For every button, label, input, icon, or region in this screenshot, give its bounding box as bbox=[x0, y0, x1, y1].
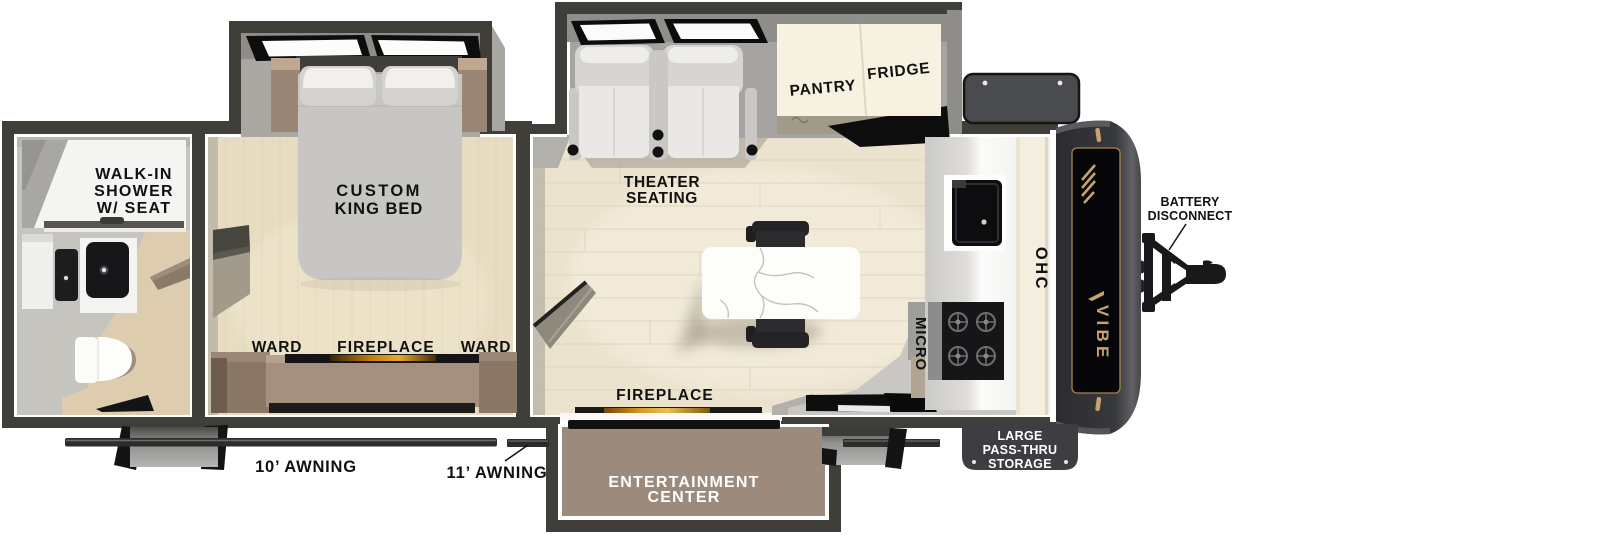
svg-text:CUSTOM: CUSTOM bbox=[336, 182, 422, 200]
svg-text:SHOWER: SHOWER bbox=[94, 183, 174, 200]
svg-text:WARD: WARD bbox=[461, 339, 512, 356]
svg-text:THEATER: THEATER bbox=[624, 174, 700, 191]
svg-text:BATTERY: BATTERY bbox=[1160, 195, 1219, 209]
svg-text:DISCONNECT: DISCONNECT bbox=[1148, 209, 1233, 223]
svg-text:FIREPLACE: FIREPLACE bbox=[616, 387, 714, 404]
svg-text:OHC: OHC bbox=[1032, 247, 1050, 291]
svg-text:VIBE: VIBE bbox=[1093, 305, 1112, 361]
svg-text:PASS-THRU: PASS-THRU bbox=[983, 443, 1058, 457]
svg-text:STORAGE: STORAGE bbox=[988, 457, 1052, 471]
svg-text:10’ AWNING: 10’ AWNING bbox=[255, 458, 357, 476]
svg-text:FIREPLACE: FIREPLACE bbox=[337, 339, 435, 356]
svg-text:11’ AWNING: 11’ AWNING bbox=[447, 464, 548, 482]
svg-text:LARGE: LARGE bbox=[997, 429, 1042, 443]
svg-text:W/ SEAT: W/ SEAT bbox=[97, 200, 172, 217]
svg-text:SEATING: SEATING bbox=[626, 190, 698, 207]
svg-text:CENTER: CENTER bbox=[648, 489, 721, 506]
svg-text:MICRO: MICRO bbox=[912, 317, 929, 371]
svg-text:KING BED: KING BED bbox=[335, 200, 424, 218]
svg-text:WARD: WARD bbox=[252, 339, 303, 356]
svg-text:WALK-IN: WALK-IN bbox=[95, 166, 173, 183]
